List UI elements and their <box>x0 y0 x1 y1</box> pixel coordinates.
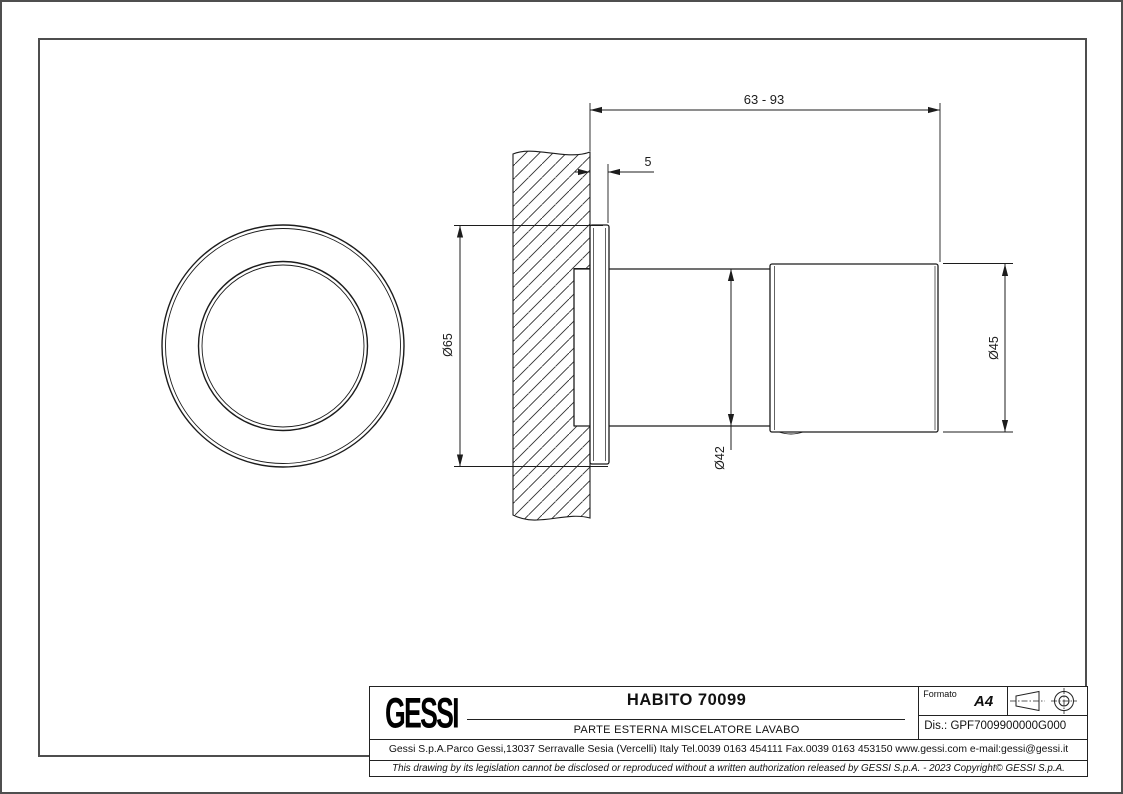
format-cell-group: Formato A4 <box>919 687 1087 739</box>
dim-flange-diameter-label: Ø65 <box>441 333 455 357</box>
gessi-logo: GESSI <box>385 692 458 733</box>
flange-outline <box>590 225 609 464</box>
front-view <box>162 225 404 467</box>
dim-body-diameter-label: Ø42 <box>713 446 727 470</box>
projection-symbol-cell <box>1008 687 1086 715</box>
drawing-subtitle: PARTE ESTERNA MISCELATORE LAVABO <box>467 724 906 736</box>
cylinder-outline <box>770 264 938 434</box>
format-value: A4 <box>974 693 993 710</box>
format-cell: Formato A4 <box>919 687 1008 715</box>
title-separator <box>467 719 905 720</box>
technical-drawing: 63 - 93 5 Ø65 Ø42 <box>2 2 1123 794</box>
first-angle-projection-icon <box>1008 687 1086 715</box>
drawing-sheet: 63 - 93 5 Ø65 Ø42 <box>0 0 1123 794</box>
dimension-overall-depth: 63 - 93 <box>590 92 940 262</box>
drawing-number-cell: Dis.: GPF7009900000G000 <box>919 716 1087 738</box>
dimension-handle-diameter: Ø45 <box>943 264 1013 433</box>
title-block: GESSI HABITO 70099 PARTE ESTERNA MISCELA… <box>369 686 1088 777</box>
drawing-title: HABITO 70099 <box>467 691 906 710</box>
title-block-main-row: GESSI HABITO 70099 PARTE ESTERNA MISCELA… <box>370 687 1087 739</box>
dim-overall-depth-label: 63 - 93 <box>744 92 784 107</box>
company-address: Gessi S.p.A.Parco Gessi,13037 Serravalle… <box>370 739 1087 760</box>
drawing-number-label: Dis.: <box>924 720 947 732</box>
format-label: Formato <box>923 689 957 699</box>
title-cell: GESSI HABITO 70099 PARTE ESTERNA MISCELA… <box>370 687 919 739</box>
dimension-body-diameter: Ø42 <box>713 269 734 470</box>
wall-hatch <box>513 151 590 520</box>
legal-notice: This drawing by its legislation cannot b… <box>370 760 1087 776</box>
drawing-number-value: GPF7009900000G000 <box>950 720 1066 732</box>
dim-flange-offset-label: 5 <box>645 155 652 169</box>
dim-handle-diameter-label: Ø45 <box>987 336 1001 360</box>
